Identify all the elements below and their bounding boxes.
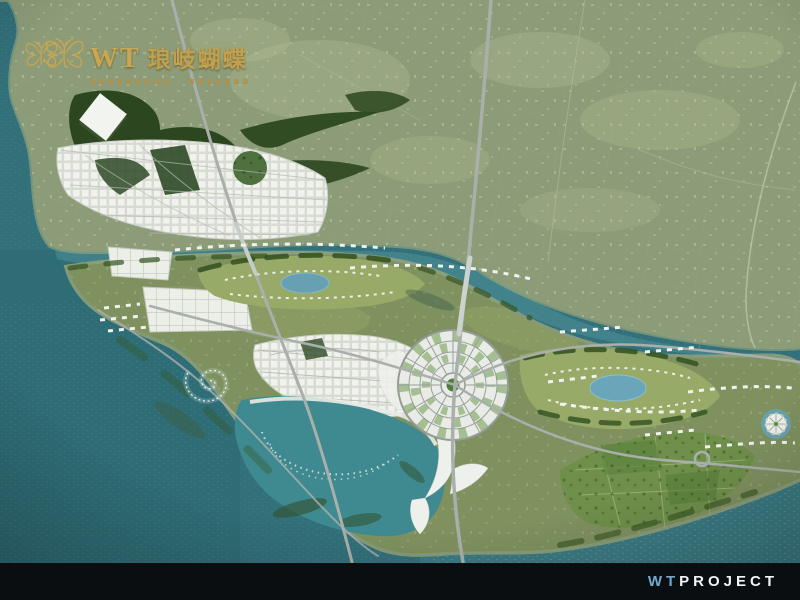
- butterfly-icon: [24, 32, 84, 82]
- footer-brand-wt: WT: [648, 573, 679, 590]
- logo-brand: WT: [90, 43, 141, 75]
- slide: WT 琅岐蝴蝶 WTPROJECT: [0, 0, 800, 600]
- footer-brand-project: PROJECT: [679, 573, 778, 590]
- logo-name: 琅岐蝴蝶: [148, 40, 248, 74]
- footer-brand: WTPROJECT: [648, 573, 800, 590]
- project-logo: WT 琅岐蝴蝶: [24, 32, 248, 84]
- aerial-masterplan-rendering: [0, 0, 800, 563]
- vignette: [0, 0, 800, 563]
- logo-tagline: [90, 79, 248, 84]
- footer-bar: WTPROJECT: [0, 563, 800, 600]
